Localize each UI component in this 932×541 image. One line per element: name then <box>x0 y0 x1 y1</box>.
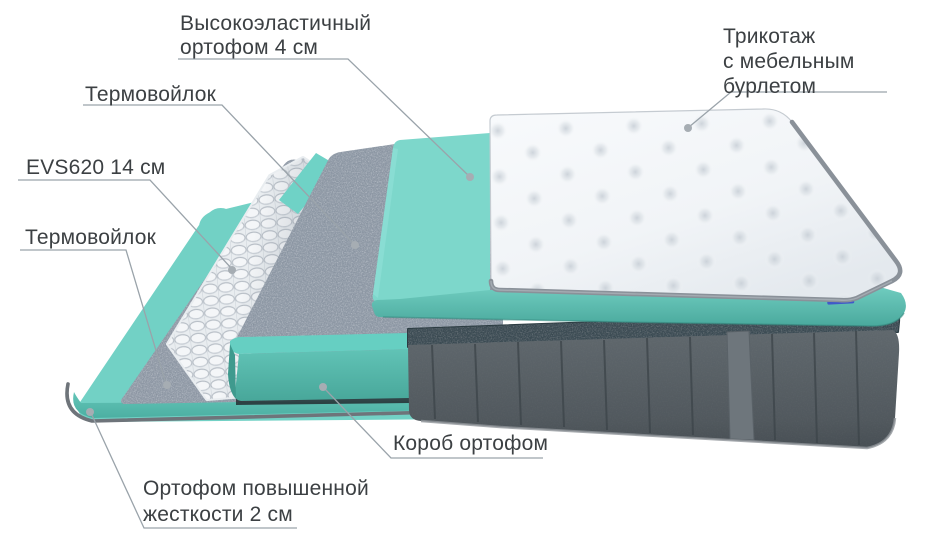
layer-knit-cover <box>490 109 900 300</box>
label-line: Короб ортофом <box>393 432 548 456</box>
label-line: EVS620 14 см <box>26 156 165 180</box>
mattress-layers-diagram: Высокоэластичный ортофом 4 см Термовойло… <box>0 0 932 541</box>
label-line: жесткости 2 см <box>143 502 369 528</box>
label-elastic-foam: Высокоэластичный ортофом 4 см <box>180 12 371 60</box>
label-line: Ортофом повышенной <box>143 476 369 502</box>
label-line: Трикотаж <box>723 24 855 49</box>
label-knit-cover: Трикотаж с мебельным бурлетом <box>723 24 855 99</box>
label-rigid-foam: Ортофом повышенной жесткости 2 см <box>143 476 369 528</box>
label-line: с мебельным <box>723 49 855 74</box>
label-spring-block: EVS620 14 см <box>26 156 165 180</box>
label-line: бурлетом <box>723 74 855 99</box>
label-line: Термовойлок <box>85 83 216 107</box>
layer-foam-box <box>228 333 410 405</box>
mattress-handle-strap <box>727 331 754 440</box>
layer-mattress-body <box>408 311 899 448</box>
label-thermofelt-top: Термовойлок <box>85 83 216 107</box>
label-line: Термовойлок <box>25 226 156 250</box>
label-line: Высокоэластичный <box>180 12 371 36</box>
label-foam-box: Короб ортофом <box>393 432 548 456</box>
label-thermofelt-bottom: Термовойлок <box>25 226 156 250</box>
label-line: ортофом 4 см <box>180 36 371 60</box>
